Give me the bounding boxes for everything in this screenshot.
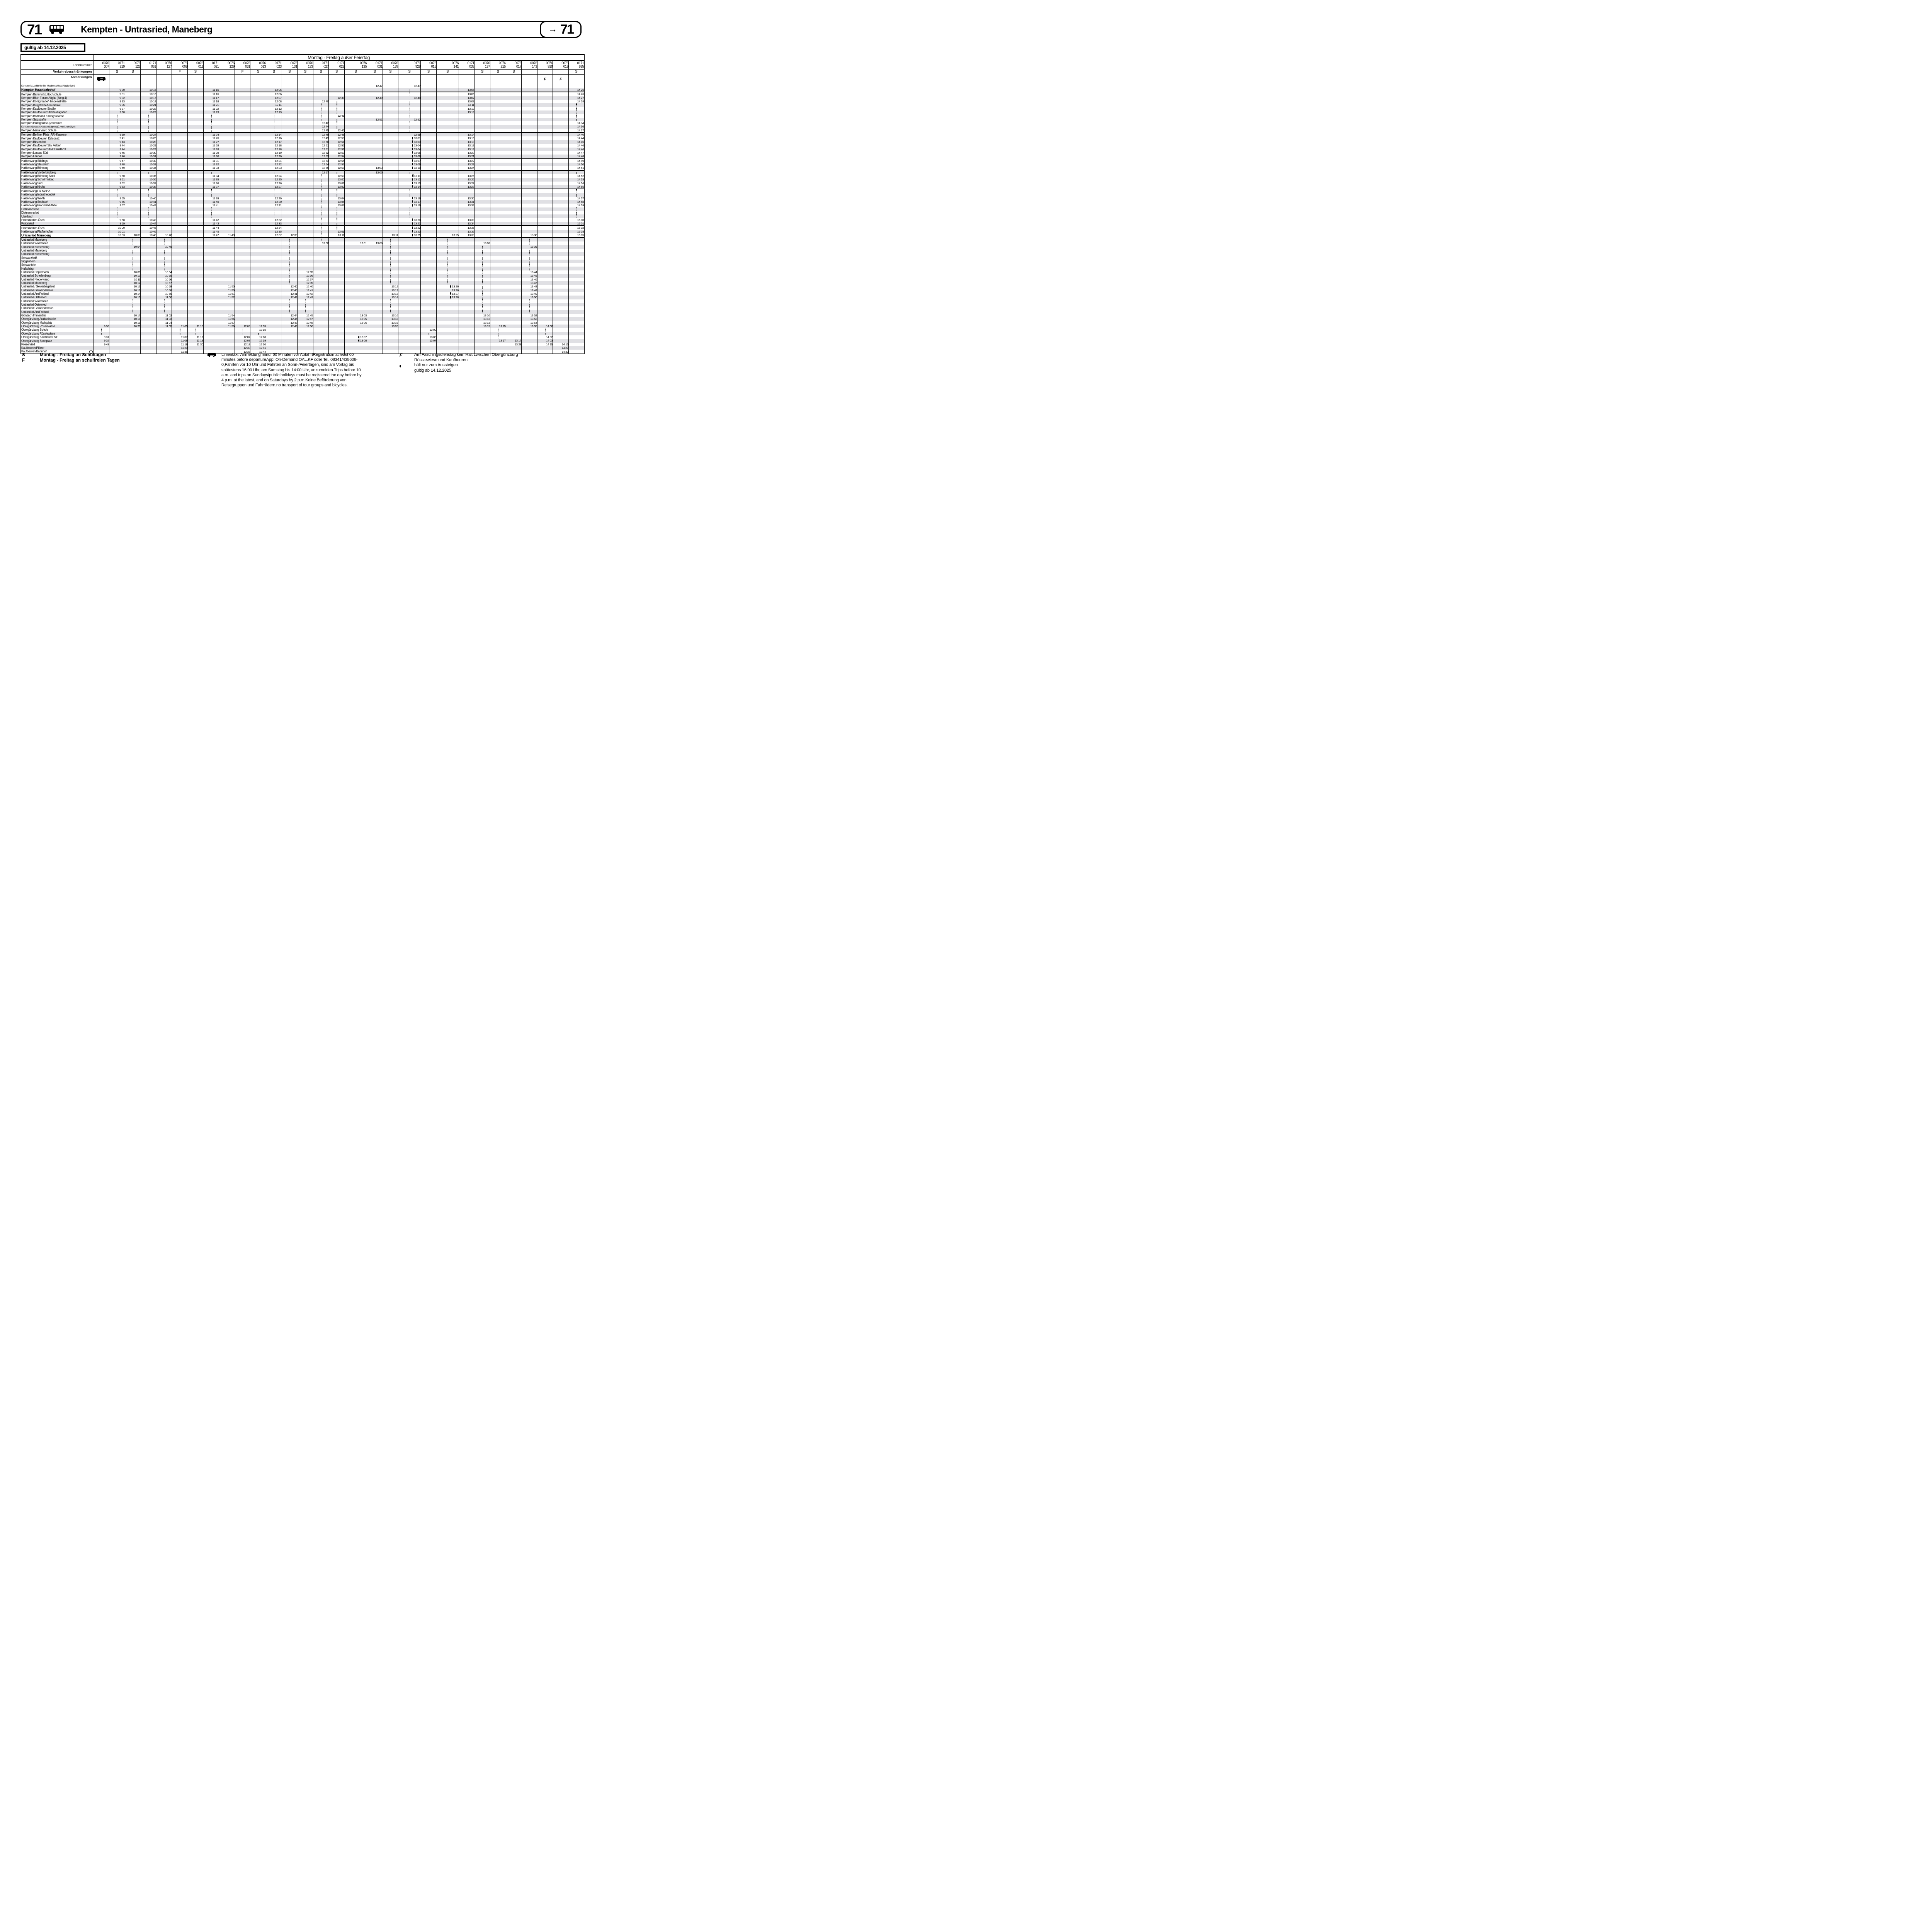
time-cell: 9 47 <box>109 159 125 163</box>
time-cell <box>345 245 367 248</box>
time-cell <box>474 245 490 248</box>
time-cell <box>298 263 313 267</box>
restriction-mark <box>537 69 553 74</box>
time-cell <box>367 178 383 181</box>
time-cell <box>125 197 141 200</box>
time-cell <box>345 163 367 166</box>
time-cell <box>203 129 219 133</box>
time-cell <box>506 107 522 110</box>
time-cell <box>436 197 459 200</box>
time-cell <box>203 310 219 314</box>
time-cell <box>398 100 421 103</box>
continuation-wavy-line <box>180 332 180 335</box>
restriction-mark: S <box>313 69 329 74</box>
time-cell <box>94 200 109 204</box>
time-cell <box>383 121 398 125</box>
time-cell <box>94 136 109 140</box>
time-cell <box>109 189 125 193</box>
continuation-wavy-line <box>447 238 448 241</box>
station-row: Untrasried Niederwang <box>21 252 584 256</box>
time-cell <box>203 207 219 211</box>
restriction-mark: F <box>172 69 188 74</box>
time-cell <box>298 140 313 144</box>
time-cell <box>398 343 421 346</box>
continuation-wavy-line <box>227 249 227 252</box>
continuation-wavy-line <box>133 252 133 256</box>
time-cell <box>219 84 235 88</box>
time-cell <box>537 332 553 335</box>
continuation-wavy-line <box>410 110 410 114</box>
time-cell: 12 33 <box>266 222 282 226</box>
time-cell: 11 07 <box>172 335 188 339</box>
continuation-wavy-line <box>375 233 375 237</box>
time-cell <box>383 310 398 314</box>
time-cell <box>553 211 569 214</box>
time-cell <box>109 289 125 292</box>
continuation-wavy-line <box>289 267 290 270</box>
time-cell <box>282 226 298 229</box>
time-cell <box>141 289 156 292</box>
time-cell <box>553 267 569 270</box>
time-cell <box>266 114 282 117</box>
station-row: Untrasried Niederwang10 1110 5612 3713 4… <box>21 278 584 281</box>
time-cell <box>235 222 250 226</box>
time-cell <box>522 310 537 314</box>
legend-text: Montag - Freitag an schulfreien Tagen <box>40 358 120 363</box>
time-cell <box>156 238 172 241</box>
time-cell <box>203 346 219 350</box>
time-cell <box>568 289 584 292</box>
time-cell <box>125 121 141 125</box>
time-cell: 12 52 <box>398 118 421 121</box>
continuation-wavy-line <box>321 118 321 121</box>
time-cell <box>313 230 329 233</box>
continuation-wavy-line <box>274 121 274 125</box>
time-cell <box>383 211 398 214</box>
time-cell: 11 15 <box>203 88 219 92</box>
time-cell <box>250 151 266 155</box>
time-cell <box>398 241 421 245</box>
time-cell <box>398 107 421 110</box>
time-cell <box>506 110 522 114</box>
continuation-wavy-line <box>117 125 117 128</box>
restriction-mark: S <box>474 69 490 74</box>
time-cell <box>172 159 188 163</box>
time-cell <box>474 230 490 233</box>
time-cell: 9 53 <box>109 185 125 189</box>
time-cell <box>266 335 282 339</box>
time-cell <box>474 88 490 92</box>
time-cell <box>282 96 298 100</box>
time-cell <box>298 114 313 117</box>
time-cell <box>141 207 156 211</box>
time-cell: 12 40 <box>313 100 329 103</box>
time-cell <box>125 238 141 241</box>
time-cell: 12 51 <box>313 144 329 147</box>
time-cell <box>329 270 345 274</box>
time-cell <box>474 292 490 296</box>
continuation-wavy-line <box>164 241 165 245</box>
time-cell: 10 54 <box>156 270 172 274</box>
time-cell: 9 57 <box>109 204 125 207</box>
station-row: Kempten M.Lochbihler Str._Haubenschloss … <box>21 84 584 88</box>
time-cell <box>94 151 109 155</box>
station-name: Dietmannsried <box>21 211 94 214</box>
time-cell <box>172 238 188 241</box>
time-cell <box>398 306 421 310</box>
time-cell <box>282 303 298 306</box>
trip-number: 0076307 <box>94 61 109 69</box>
time-cell <box>459 343 474 346</box>
time-cell <box>553 256 569 259</box>
time-cell: 13 48 <box>522 289 537 292</box>
trip-number: 0076011 <box>188 61 204 69</box>
time-cell <box>94 296 109 299</box>
time-cell <box>329 296 345 299</box>
time-cell <box>125 148 141 151</box>
label-fahrtnummer: Fahrtnummer <box>21 61 94 69</box>
time-cell <box>172 263 188 267</box>
time-cell <box>172 118 188 121</box>
time-cell <box>313 84 329 88</box>
time-cell <box>398 110 421 114</box>
time-cell <box>250 289 266 292</box>
time-cell <box>329 170 345 174</box>
continuation-wavy-line <box>467 207 467 211</box>
time-cell <box>298 303 313 306</box>
time-cell <box>188 328 204 331</box>
time-cell <box>383 100 398 103</box>
time-cell <box>94 310 109 314</box>
time-cell <box>94 241 109 245</box>
timetable-page: { "header": { "route_number": "71", "tit… <box>0 0 603 427</box>
time-cell <box>459 170 474 174</box>
time-cell <box>219 163 235 166</box>
time-cell: 11 03 <box>156 317 172 321</box>
time-cell <box>474 252 490 256</box>
time-cell <box>537 289 553 292</box>
time-cell <box>459 274 474 277</box>
continuation-wavy-line <box>337 193 337 196</box>
time-cell: 14 58 <box>568 200 584 204</box>
time-cell <box>421 148 437 151</box>
time-cell <box>219 140 235 144</box>
time-cell <box>282 274 298 277</box>
time-cell <box>367 100 383 103</box>
continuation-wavy-line <box>482 263 483 267</box>
time-cell <box>313 317 329 321</box>
continuation-wavy-line <box>211 125 211 128</box>
time-cell <box>459 252 474 256</box>
time-cell <box>141 245 156 248</box>
time-cell <box>156 332 172 335</box>
time-cell <box>383 92 398 96</box>
time-cell <box>537 281 553 285</box>
time-cell <box>298 96 313 100</box>
time-cell <box>436 218 459 222</box>
time-cell <box>188 270 204 274</box>
station-name: Untrasried Niederwang <box>21 252 94 256</box>
time-cell <box>490 296 506 299</box>
time-cell <box>506 200 522 204</box>
time-cell <box>125 260 141 263</box>
time-cell <box>235 121 250 125</box>
time-cell <box>141 335 156 339</box>
time-cell <box>282 140 298 144</box>
time-cell <box>219 238 235 241</box>
continuation-wavy-line <box>390 263 391 267</box>
time-cell <box>553 296 569 299</box>
time-cell <box>383 148 398 151</box>
continuation-wavy-line <box>337 103 337 107</box>
time-cell <box>345 96 367 100</box>
time-cell <box>125 110 141 114</box>
continuation-wavy-line <box>576 171 577 174</box>
time-cell <box>266 241 282 245</box>
time-cell <box>383 245 398 248</box>
time-cell <box>474 178 490 181</box>
time-cell <box>125 332 141 335</box>
time-cell <box>522 140 537 144</box>
continuation-wavy-line <box>227 270 227 274</box>
time-cell: 10 03 <box>109 233 125 238</box>
time-cell <box>266 245 282 248</box>
time-cell <box>436 214 459 218</box>
continuation-wavy-line <box>482 260 483 263</box>
time-cell <box>436 96 459 100</box>
time-cell: 14 46 <box>568 144 584 147</box>
time-cell <box>474 274 490 277</box>
time-cell <box>474 118 490 121</box>
time-cell: 13 02 <box>329 185 345 189</box>
time-cell <box>235 204 250 207</box>
time-cell <box>188 306 204 310</box>
time-cell <box>172 207 188 211</box>
time-cell: 10 12 <box>125 281 141 285</box>
time-cell: 13 17 <box>506 339 522 342</box>
time-cell <box>537 214 553 218</box>
time-cell <box>553 332 569 335</box>
continuation-wavy-line <box>576 110 577 114</box>
time-cell <box>490 274 506 277</box>
time-cell <box>94 230 109 233</box>
time-cell: 12 25 <box>266 178 282 181</box>
time-cell <box>490 103 506 107</box>
time-cell <box>345 252 367 256</box>
station-name: Kempten Maria Ward Schule <box>21 129 94 133</box>
time-cell <box>94 92 109 96</box>
time-cell <box>367 306 383 310</box>
continuation-wavy-line <box>227 278 227 281</box>
time-cell <box>94 222 109 226</box>
time-cell: 11 47 <box>203 233 219 238</box>
time-cell <box>506 204 522 207</box>
time-cell <box>266 121 282 125</box>
time-cell <box>421 274 437 277</box>
time-cell <box>298 84 313 88</box>
time-cell <box>398 278 421 281</box>
time-cell <box>94 274 109 277</box>
time-cell <box>298 226 313 229</box>
station-name: Kempten Kaufbeurer Str./ Felben <box>21 144 94 147</box>
time-cell: 10 01 <box>109 230 125 233</box>
time-cell <box>367 230 383 233</box>
time-cell <box>109 325 125 328</box>
time-cell <box>506 260 522 263</box>
time-cell <box>421 270 437 274</box>
time-cell: 11 04 <box>156 321 172 325</box>
time-cell <box>125 328 141 331</box>
time-cell <box>568 335 584 339</box>
trip-number: 0076919 <box>537 61 553 69</box>
station-name: Haldenwang Fa. MAHA <box>21 189 94 193</box>
time-cell <box>250 148 266 151</box>
continuation-wavy-line <box>467 193 467 196</box>
time-cell <box>421 92 437 96</box>
time-cell <box>219 110 235 114</box>
time-cell <box>383 274 398 277</box>
time-cell <box>141 321 156 325</box>
time-cell: 15 05 <box>568 233 584 238</box>
time-cell: 12 57 <box>313 170 329 174</box>
station-row: Kempten Maria Ward Schule12 4512 4514 37 <box>21 129 584 133</box>
continuation-wavy-line <box>375 178 375 181</box>
time-cell <box>235 256 250 259</box>
time-cell <box>421 155 437 158</box>
time-cell <box>367 317 383 321</box>
time-cell <box>313 233 329 238</box>
time-cell <box>421 314 437 317</box>
continuation-wavy-line <box>289 249 290 252</box>
station-name: Kempten Leubas <box>21 155 94 158</box>
time-cell <box>141 118 156 121</box>
time-cell <box>329 314 345 317</box>
time-cell <box>367 328 383 331</box>
note-empty <box>459 74 474 84</box>
time-cell <box>506 270 522 274</box>
time-cell <box>506 332 522 335</box>
continuation-wavy-line <box>529 249 530 252</box>
time-cell: 11 45 <box>203 230 219 233</box>
time-cell <box>250 163 266 166</box>
station-name: Schwantele <box>21 263 94 267</box>
time-cell <box>345 306 367 310</box>
time-cell <box>219 114 235 117</box>
time-cell <box>553 285 569 288</box>
time-cell <box>522 335 537 339</box>
time-cell <box>109 332 125 335</box>
continuation-wavy-line <box>148 121 149 125</box>
station-row: Haldenwang Schwimmbad9 5110 3611 3512 25… <box>21 178 584 181</box>
time-cell <box>522 218 537 222</box>
continuation-wavy-line <box>447 245 448 248</box>
time-cell <box>329 218 345 222</box>
time-cell: 12 40 <box>298 285 313 288</box>
time-cell <box>250 226 266 229</box>
time-cell <box>109 263 125 267</box>
time-cell <box>329 289 345 292</box>
time-cell <box>235 310 250 314</box>
time-cell <box>250 166 266 170</box>
time-cell <box>109 310 125 314</box>
time-cell <box>141 241 156 245</box>
time-cell <box>383 207 398 211</box>
time-cell: 9 51 <box>109 178 125 181</box>
time-cell <box>522 211 537 214</box>
time-cell <box>367 292 383 296</box>
time-cell: 10 56 <box>156 278 172 281</box>
time-cell <box>329 274 345 277</box>
time-cell <box>367 140 383 144</box>
station-name: Haldenwang Wörth <box>21 197 94 200</box>
time-cell <box>474 214 490 218</box>
time-cell: 12 45 <box>313 129 329 133</box>
time-cell <box>537 256 553 259</box>
continuation-wavy-line <box>274 171 274 174</box>
time-cell <box>329 92 345 96</box>
time-cell <box>345 230 367 233</box>
time-cell <box>188 252 204 256</box>
note-empty <box>203 74 219 84</box>
time-cell <box>188 144 204 147</box>
time-cell <box>490 197 506 200</box>
time-cell <box>537 140 553 144</box>
time-cell <box>490 211 506 214</box>
time-cell <box>398 249 421 252</box>
time-cell <box>421 96 437 100</box>
time-cell <box>421 303 437 306</box>
time-cell <box>172 285 188 288</box>
time-cell <box>490 321 506 325</box>
time-cell <box>383 110 398 114</box>
time-cell <box>490 267 506 270</box>
time-cell <box>282 129 298 133</box>
time-cell: 13 20 <box>383 325 398 328</box>
time-cell: 13 38 <box>522 233 537 238</box>
time-cell: 9 43 <box>94 343 109 346</box>
time-cell <box>235 296 250 299</box>
time-cell <box>156 218 172 222</box>
continuation-wavy-line <box>356 303 356 306</box>
time-cell <box>329 346 345 350</box>
time-cell <box>125 182 141 185</box>
time-cell <box>506 314 522 317</box>
time-cell <box>329 110 345 114</box>
time-cell <box>94 260 109 263</box>
continuation-wavy-line <box>482 285 483 288</box>
time-cell <box>345 222 367 226</box>
time-cell <box>398 92 421 96</box>
time-cell <box>421 174 437 178</box>
time-cell <box>250 103 266 107</box>
time-cell: 12 19 <box>250 339 266 342</box>
time-cell <box>474 151 490 155</box>
station-row: Haldenwang Börwang Nord9 5010 3511 3412 … <box>21 174 584 178</box>
time-cell <box>250 285 266 288</box>
time-cell <box>474 193 490 196</box>
continuation-wavy-line <box>356 263 356 267</box>
time-cell: 13 13 <box>459 110 474 114</box>
time-cell <box>219 197 235 200</box>
time-cell: 12 18 <box>250 335 266 339</box>
time-cell: 11 26 <box>203 136 219 140</box>
time-cell: 14 49 <box>568 159 584 163</box>
time-cell: 11 18 <box>172 343 188 346</box>
time-cell <box>266 306 282 310</box>
time-cell: 13 15 <box>490 325 506 328</box>
time-cell <box>266 343 282 346</box>
time-cell <box>203 317 219 321</box>
